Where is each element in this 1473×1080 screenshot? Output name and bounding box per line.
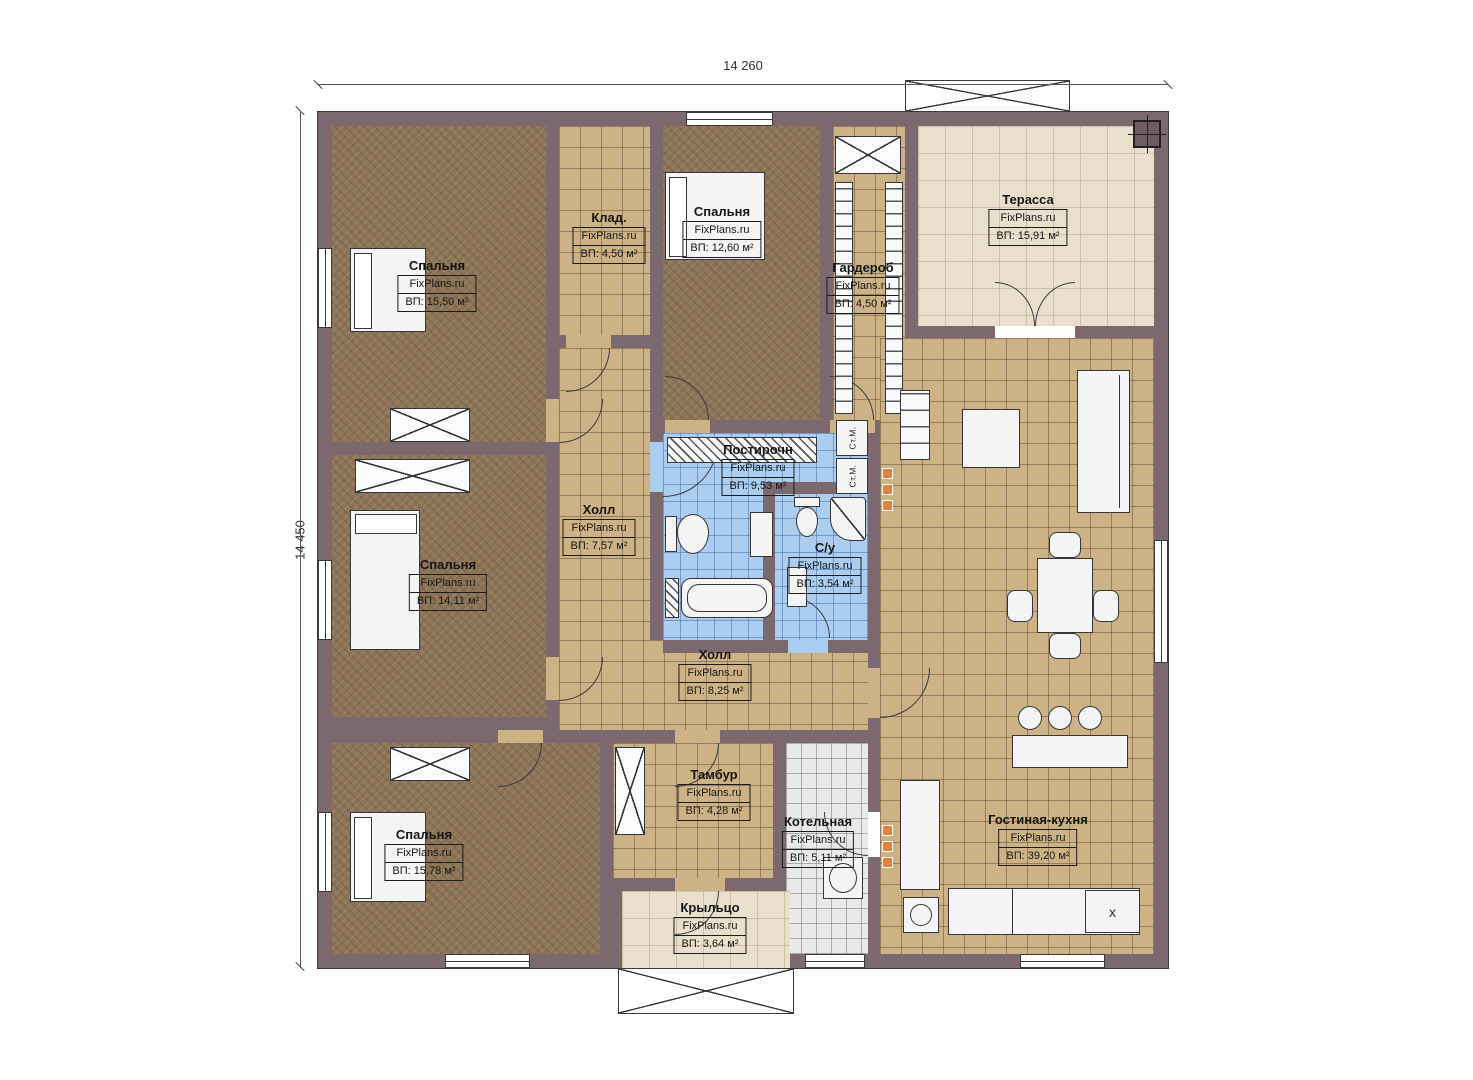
chair <box>1007 590 1033 622</box>
toilet-tank <box>665 516 677 552</box>
stove: x <box>1085 890 1140 933</box>
door-opening <box>498 730 543 743</box>
pillow <box>354 253 372 329</box>
room-label-vestibule: Тамбур FixPlans.ru ВП: 4,28 м² <box>677 767 750 821</box>
porch-steps-awning <box>618 968 794 1014</box>
dimension-line-left <box>300 112 301 968</box>
coffee-table <box>962 409 1020 468</box>
corner-shelf <box>665 578 679 618</box>
radiator-marker <box>882 500 893 511</box>
window <box>686 112 773 126</box>
radiator-marker <box>882 484 893 495</box>
radiator-marker <box>882 825 893 836</box>
door-opening <box>868 668 880 718</box>
room-label-terrace: Терасса FixPlans.ru ВП: 15,91 м² <box>988 192 1067 246</box>
washing-machine-label: Ст.М. <box>847 427 857 450</box>
chair <box>1049 633 1081 659</box>
bar-stool <box>1048 706 1072 730</box>
room-label-storage: Клад. FixPlans.ru ВП: 4,50 м² <box>572 210 645 264</box>
cabinet <box>750 512 773 557</box>
building-outline: Ст.М. Ст.М. x <box>318 112 1168 968</box>
room-label-boiler-room: Котельная FixPlans.ru ВП: 5,11 м² <box>782 814 854 868</box>
window <box>318 812 332 892</box>
door-opening <box>995 326 1075 338</box>
chair <box>1093 590 1119 622</box>
room-label-bedroom-1: Спальня FixPlans.ru ВП: 15,50 м² <box>397 258 476 312</box>
window <box>318 560 332 640</box>
door-opening <box>566 335 611 348</box>
bathtub <box>681 578 773 618</box>
radiator-marker <box>882 841 893 852</box>
door-opening <box>675 878 725 891</box>
room-label-bathroom: С/у FixPlans.ru ВП: 3,54 м² <box>788 540 861 594</box>
room-label-bedroom-3: Спальня FixPlans.ru ВП: 14,11 м² <box>409 557 487 611</box>
wardrobe-closet <box>355 459 470 493</box>
door-opening <box>788 640 828 653</box>
window <box>1020 954 1105 968</box>
fridge <box>900 390 930 460</box>
floor-bedroom-2 <box>663 126 820 420</box>
bar-stool <box>1018 706 1042 730</box>
room-label-bedroom-2: Спальня FixPlans.ru ВП: 12,60 м² <box>682 204 761 258</box>
window <box>318 248 332 328</box>
room-label-wardrobe: Гардероб FixPlans.ru ВП: 4,50 м² <box>826 260 899 314</box>
kitchen-island <box>1012 735 1128 768</box>
washing-machine: Ст.М. <box>836 420 868 456</box>
washing-machine: Ст.М. <box>836 458 868 494</box>
radiator-marker <box>882 857 893 868</box>
chair <box>1049 532 1081 558</box>
dining-table <box>1037 558 1093 633</box>
door-opening <box>675 730 720 743</box>
floor-hall-1 <box>559 348 650 640</box>
dimension-top-label: 14 260 <box>717 58 769 73</box>
bar-stool <box>1078 706 1102 730</box>
washing-machine-label: Ст.М. <box>847 465 857 488</box>
door-opening <box>650 442 663 492</box>
room-label-hall-1: Холл FixPlans.ru ВП: 7,57 м² <box>562 502 635 556</box>
room-label-laundry: Постирочн FixPlans.ru ВП: 9,53 м² <box>721 442 794 496</box>
chimney-symbol <box>1133 120 1161 148</box>
sofa <box>1077 370 1130 513</box>
wardrobe-closet <box>615 747 645 835</box>
kitchen-sink <box>903 897 939 933</box>
stove-marker: x <box>1109 904 1116 920</box>
kitchen-counter <box>900 780 940 890</box>
room-label-bedroom-4: Спальня FixPlans.ru ВП: 15,78 м² <box>384 827 463 881</box>
toilet-tank <box>794 497 820 507</box>
door-opening <box>868 812 880 857</box>
floor-plan-canvas: 14 260 14 450 <box>0 0 1473 1080</box>
window <box>1154 540 1168 663</box>
window <box>445 954 530 968</box>
shower <box>830 497 866 541</box>
room-label-living-kitchen: Гостиная-кухня FixPlans.ru ВП: 39,20 м² <box>988 812 1088 866</box>
door-opening <box>665 420 710 433</box>
wardrobe-closet <box>390 747 470 781</box>
radiator-marker <box>882 468 893 479</box>
door-opening <box>546 657 559 700</box>
pillow <box>355 514 417 534</box>
wardrobe-closet <box>835 136 901 174</box>
door-opening <box>546 399 559 442</box>
pillow <box>354 817 372 899</box>
room-label-porch: Крыльцо FixPlans.ru ВП: 3,64 м² <box>673 900 746 954</box>
window <box>805 954 865 968</box>
dimension-line-top <box>318 84 1168 85</box>
room-label-hall-2: Холл FixPlans.ru ВП: 8,25 м² <box>678 647 751 701</box>
wardrobe-closet <box>390 408 470 442</box>
